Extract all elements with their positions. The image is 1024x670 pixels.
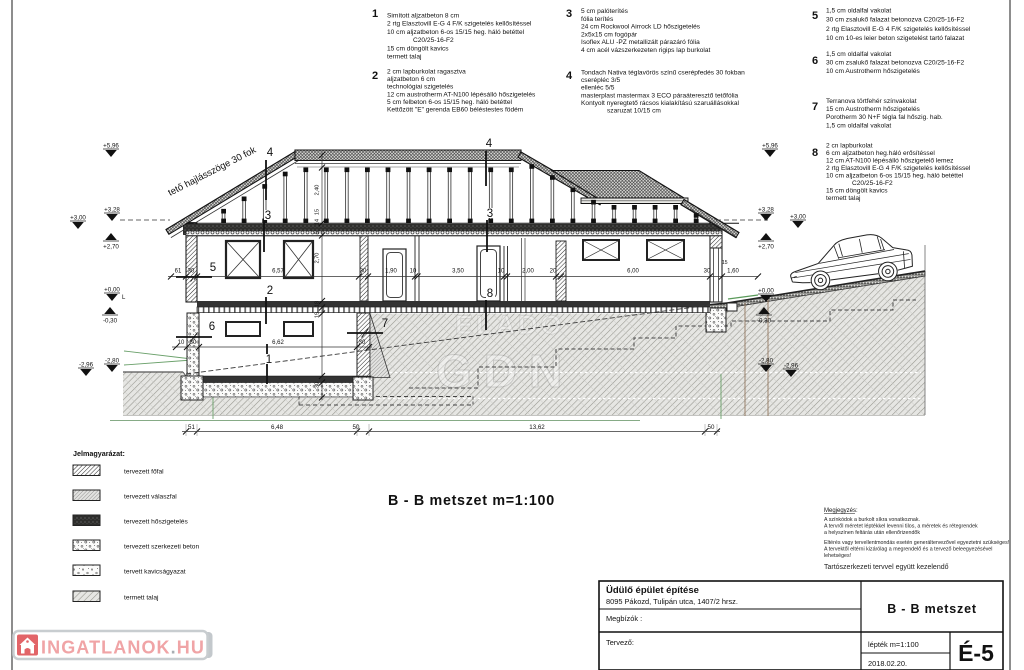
svg-text:10: 10 — [498, 269, 505, 275]
svg-text:+3,00: +3,00 — [70, 215, 86, 222]
svg-text:1: 1 — [266, 354, 272, 366]
svg-text:lépték m=1:100: lépték m=1:100 — [868, 640, 919, 649]
svg-text:Eltérés vagy tervellentmondás: Eltérés vagy tervellentmondás esetén gen… — [824, 540, 1009, 546]
svg-text:Megjegyzés:: Megjegyzés: — [824, 508, 858, 514]
svg-text:Tondach Nativa téglavörös szín: Tondach Nativa téglavörös színű cserépfe… — [581, 70, 745, 77]
svg-text:fólia terítés: fólia terítés — [581, 16, 614, 23]
svg-text:10 cm aljzatbeton 6-os 15/15 h: 10 cm aljzatbeton 6-os 15/15 heg. háló b… — [387, 29, 525, 36]
svg-text:6: 6 — [812, 55, 818, 67]
svg-text:technológiai szigetelés: technológiai szigetelés — [387, 84, 454, 91]
svg-text:-0,30: -0,30 — [757, 318, 772, 325]
svg-text:A tervről méretet léptékkel le: A tervről méretet léptékkel levenni tilo… — [824, 524, 978, 530]
svg-text:Kontyolt nyeregtető rácsos kia: Kontyolt nyeregtető rácsos kialakítású s… — [581, 100, 739, 107]
svg-text:2: 2 — [372, 70, 378, 82]
svg-text:Jelmagyarázat:: Jelmagyarázat: — [73, 449, 125, 458]
svg-text:2,00: 2,00 — [522, 269, 534, 275]
svg-text:2,40: 2,40 — [315, 185, 321, 196]
svg-text:30: 30 — [704, 269, 711, 275]
svg-text:50: 50 — [353, 424, 360, 431]
svg-text:É-5: É-5 — [958, 639, 994, 666]
svg-text:10 cm aljzatbeton 6-os 15/15 h: 10 cm aljzatbeton 6-os 15/15 heg. háló b… — [826, 173, 964, 180]
svg-text:61: 61 — [175, 269, 182, 275]
svg-text:A színkódok a burkolt síkra vo: A színkódok a burkolt síkra vonatkoznak. — [824, 517, 920, 523]
svg-text:12 cm AT-N100 lépésálló hőszig: 12 cm AT-N100 lépésálló hőszigetelő leme… — [826, 158, 953, 165]
svg-text:Tervező:: Tervező: — [606, 638, 634, 647]
svg-text:+5,96: +5,96 — [762, 143, 778, 150]
svg-text:7: 7 — [812, 101, 818, 113]
svg-text:B - B metszet m=1:100: B - B metszet m=1:100 — [388, 493, 555, 509]
svg-text:3: 3 — [265, 210, 271, 222]
svg-text:10: 10 — [410, 269, 417, 275]
svg-text:1,60: 1,60 — [727, 269, 739, 275]
svg-text:masterplast mastermax 3 ECO p: masterplast mastermax 3 ECO páraátereszt… — [581, 92, 739, 99]
svg-text:GDN: GDN — [436, 345, 574, 397]
svg-text:8: 8 — [487, 288, 493, 300]
svg-text:2 rtg Elasztovill E-G 4 F/K: 2 rtg Elasztovill E-G 4 F/K szigetelés k… — [826, 165, 971, 172]
svg-text:5: 5 — [315, 231, 321, 234]
svg-text:19: 19 — [315, 312, 321, 318]
svg-text:+0,00: +0,00 — [758, 288, 774, 295]
svg-text:-2,80: -2,80 — [105, 358, 120, 365]
svg-text:4: 4 — [267, 147, 274, 159]
svg-text:B - B metszet: B - B metszet — [887, 602, 977, 616]
svg-text:-2,96: -2,96 — [784, 363, 799, 370]
svg-text:8095 Pákozd, Tulipán utca, 140: 8095 Pákozd, Tulipán utca, 1407/2 hrsz. — [606, 597, 738, 606]
svg-text:3,50: 3,50 — [452, 269, 464, 275]
svg-text:3: 3 — [487, 208, 493, 220]
svg-text:13,62: 13,62 — [529, 424, 545, 431]
svg-text:Megbízók :: Megbízók : — [606, 614, 642, 623]
svg-text:INGATLANOK.HU: INGATLANOK.HU — [41, 638, 205, 658]
svg-text:6,48: 6,48 — [271, 424, 284, 431]
svg-text:C20/25-16-F2: C20/25-16-F2 — [852, 180, 893, 187]
svg-text:+3,00: +3,00 — [790, 214, 806, 221]
svg-text:30 cm zsalukő falazat betonozv: 30 cm zsalukő falazat betonozva C20/25-1… — [826, 17, 965, 24]
svg-text:5: 5 — [812, 10, 818, 22]
svg-text:2 cm lapburkolat ragasztva: 2 cm lapburkolat ragasztva — [387, 69, 466, 76]
svg-text:ellenléc 5/5: ellenléc 5/5 — [581, 85, 615, 92]
svg-text:termett talaj: termett talaj — [826, 195, 861, 202]
svg-text:14: 14 — [315, 219, 321, 225]
svg-text:2x5x15 cm fogópár: 2x5x15 cm fogópár — [581, 31, 638, 38]
svg-text:lehetséges!: lehetséges! — [824, 553, 851, 559]
svg-text:Isoflex ALU -PZ metallizált p: Isoflex ALU -PZ metallizált párazáró fól… — [581, 39, 700, 46]
svg-text:4: 4 — [566, 70, 573, 82]
svg-text:50: 50 — [708, 424, 715, 431]
svg-text:Porotherm 30 N+F tégla fal hős: Porotherm 30 N+F tégla fal hőszig. hab. — [826, 114, 943, 121]
svg-text:10 cm 10-es leier beton sziget: 10 cm 10-es leier beton szigetelést tart… — [826, 35, 964, 42]
svg-text:6,57: 6,57 — [272, 269, 284, 275]
svg-text:aljzatbeton 6 cm: aljzatbeton 6 cm — [387, 76, 436, 83]
svg-text:cserépléc 3/5: cserépléc 3/5 — [581, 77, 621, 84]
svg-text:+5,96: +5,96 — [103, 143, 119, 150]
svg-text:18: 18 — [315, 301, 321, 307]
svg-text:C20/25-16-F2: C20/25-16-F2 — [413, 37, 454, 44]
svg-text:4 cm acél vázszerkezeten rigip: 4 cm acél vázszerkezeten rigips lap burk… — [581, 47, 711, 54]
svg-text:a helyszínen feltárás után ell: a helyszínen feltárás után ellenőrizendő… — [824, 530, 920, 536]
svg-text:tervett kavicságyazat: tervett kavicságyazat — [124, 569, 186, 576]
svg-text:24 cm Rockwool Airrock LD hősz: 24 cm Rockwool Airrock LD hőszigetelés — [581, 24, 701, 31]
svg-text:6: 6 — [209, 321, 215, 333]
svg-text:Tartószerkezeti tervvel együtt: Tartószerkezeti tervvel együtt kezelendő — [824, 564, 949, 571]
svg-text:15: 15 — [315, 209, 321, 215]
svg-text:tervezett főfal: tervezett főfal — [124, 469, 164, 476]
svg-text:15 cm döngölt kavics: 15 cm döngölt kavics — [826, 188, 888, 195]
svg-text:tervezett válaszfal: tervezett válaszfal — [124, 494, 177, 501]
svg-text:20: 20 — [550, 269, 557, 275]
svg-text:2 rtg Elasztovill E-G 4 F/K sz: 2 rtg Elasztovill E-G 4 F/K szigetelés k… — [826, 26, 971, 33]
svg-text:7: 7 — [382, 318, 388, 330]
svg-text:6 cm aljzatbeton heg.háló erős: 6 cm aljzatbeton heg.háló erősítéssel — [826, 150, 935, 157]
svg-text:Üdülő épület építése: Üdülő épület építése — [606, 585, 699, 596]
svg-text:6,00: 6,00 — [627, 269, 639, 275]
svg-text:10: 10 — [178, 340, 185, 346]
svg-text:Kettőzött "E" gerenda EB60 bél: Kettőzött "E" gerenda EB60 béléstestes f… — [387, 107, 524, 114]
svg-text:+2,70: +2,70 — [758, 244, 774, 251]
svg-text:+3,28: +3,28 — [104, 207, 120, 214]
svg-text:5: 5 — [210, 262, 216, 274]
svg-text:szaruzat 10/15 cm: szaruzat 10/15 cm — [607, 108, 661, 115]
svg-text:6,62: 6,62 — [272, 340, 284, 346]
svg-text:+3,28: +3,28 — [758, 207, 774, 214]
svg-text:15: 15 — [722, 260, 728, 266]
svg-text:termett talaj: termett talaj — [387, 54, 422, 61]
svg-text:ELADÓ: ELADÓ — [455, 309, 565, 340]
svg-text:-2,80: -2,80 — [759, 358, 774, 365]
svg-text:5 cm felbeton 6-os 15/15 heg.: 5 cm felbeton 6-os 15/15 heg. háló betét… — [387, 99, 513, 106]
svg-text:+2,70: +2,70 — [103, 244, 119, 251]
svg-text:tervezett szerkezeti beton: tervezett szerkezeti beton — [124, 544, 199, 551]
svg-text:15 cm Austrotherm hőszigetelés: 15 cm Austrotherm hőszigetelés — [826, 106, 921, 113]
svg-text:tervezett hőszigetelés: tervezett hőszigetelés — [124, 519, 188, 526]
svg-text:termett talaj: termett talaj — [124, 595, 159, 602]
svg-text:10 cm Austrotherm hőszigetelés: 10 cm Austrotherm hőszigetelés — [826, 68, 921, 75]
svg-text:12 cm austrotherm AT-N100 lépé: 12 cm austrotherm AT-N100 lépésálló hősz… — [387, 91, 536, 98]
svg-text:+0,00: +0,00 — [104, 287, 120, 294]
svg-text:-2,96: -2,96 — [79, 362, 94, 369]
svg-text:-0,30: -0,30 — [103, 318, 118, 325]
svg-text:15 cm döngölt kavics: 15 cm döngölt kavics — [387, 45, 449, 52]
svg-text:1,5 cm oldalfal vakolat: 1,5 cm oldalfal vakolat — [826, 51, 891, 58]
svg-text:2018.02.20.: 2018.02.20. — [868, 659, 907, 668]
svg-text:30: 30 — [360, 269, 367, 275]
svg-text:3: 3 — [566, 8, 572, 20]
svg-text:30: 30 — [359, 340, 366, 346]
svg-text:5 cm palóterítés: 5 cm palóterítés — [581, 8, 629, 15]
svg-text:30 cm zsalukő falazat betonozv: 30 cm zsalukő falazat betonozva C20/25-1… — [826, 59, 965, 66]
svg-text:2 cn lapburkolat: 2 cn lapburkolat — [826, 143, 873, 150]
svg-text:Terranova törtfehér színvakola: Terranova törtfehér színvakolat — [826, 98, 917, 105]
svg-text:4: 4 — [486, 138, 493, 150]
svg-text:8: 8 — [812, 147, 818, 159]
svg-text:1,90: 1,90 — [385, 269, 397, 275]
svg-text:2,70: 2,70 — [315, 253, 321, 264]
svg-text:30: 30 — [315, 382, 321, 388]
svg-text:1,5 cm oldalfal vakolat: 1,5 cm oldalfal vakolat — [826, 8, 891, 15]
svg-text:30: 30 — [188, 269, 195, 275]
svg-text:2: 2 — [267, 285, 273, 297]
svg-text:Simított aljzatbeton 8 cm: Simított aljzatbeton 8 cm — [387, 13, 460, 20]
svg-text:51: 51 — [188, 424, 195, 431]
svg-text:2 rtg Elasztovill E-G 4 F/K: 2 rtg Elasztovill E-G 4 F/K szigetelés k… — [387, 21, 532, 28]
svg-text:1,5 cm oldalfal vakolat: 1,5 cm oldalfal vakolat — [826, 122, 891, 129]
svg-text:1: 1 — [372, 8, 378, 20]
svg-text:A tervektől eltérni kizárólag: A tervektől eltérni kizárólag a megrende… — [824, 547, 992, 553]
